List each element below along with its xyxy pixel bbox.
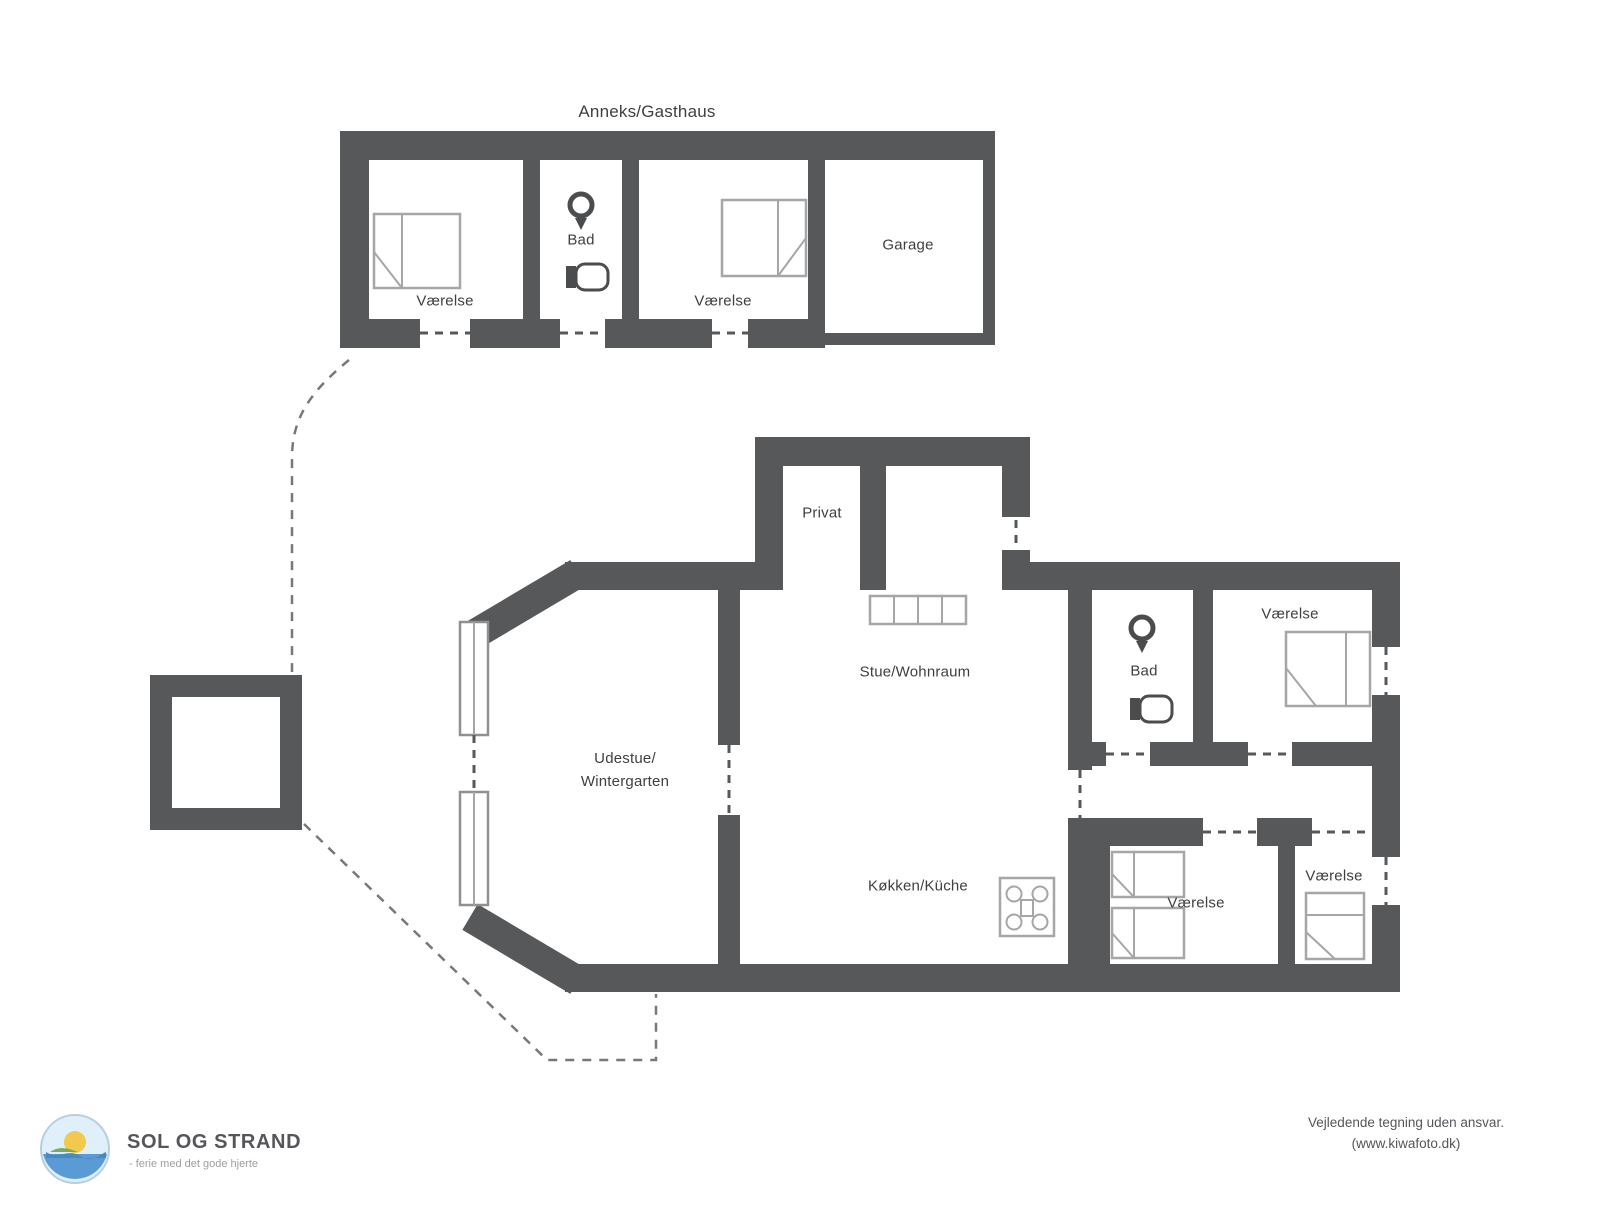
room-label-vaerelse-nord: Værelse	[1261, 606, 1318, 623]
single-bed-icon	[1306, 893, 1364, 959]
room-label-privat: Privat	[802, 505, 842, 522]
sink-icon	[1130, 696, 1172, 722]
room-label-udestue-line2: Wintergarten	[581, 770, 669, 793]
double-bed-icon	[722, 200, 806, 276]
room-label-udestue-line1: Udestue/	[581, 747, 669, 770]
single-bed-icon	[1112, 908, 1184, 958]
room-label-koekken: Køkken/Küche	[868, 878, 968, 895]
toilet-icon	[570, 194, 592, 230]
double-bed-icon	[1286, 632, 1370, 706]
sink-icon	[566, 264, 608, 290]
privat-block-walls	[755, 437, 1030, 590]
disclaimer-line2: (www.kiwafoto.dk)	[1272, 1133, 1540, 1154]
room-label-annex-vaerelse-1: Værelse	[416, 293, 473, 310]
disclaimer-line1: Vejledende tegning uden ansvar.	[1272, 1112, 1540, 1133]
floor-plan: Anneks/Gasthaus Værelse Bad Værelse Gara…	[0, 0, 1606, 1205]
stove-icon	[1000, 878, 1054, 936]
toilet-icon	[1131, 617, 1153, 653]
brand-tagline: - ferie med det gode hjerte	[129, 1158, 258, 1170]
room-label-annex-bad: Bad	[567, 232, 594, 249]
window	[460, 622, 488, 905]
sideboard-icon	[870, 596, 966, 624]
room-label-udestue: Udestue/ Wintergarten	[581, 747, 669, 793]
brand-wordmark: SOL OG STRAND	[127, 1131, 301, 1154]
annex-title: Anneks/Gasthaus	[578, 102, 715, 122]
room-label-annex-vaerelse-2: Værelse	[694, 293, 751, 310]
room-label-vaerelse-syd-vest: Værelse	[1167, 895, 1224, 912]
room-label-bad: Bad	[1130, 663, 1157, 680]
sun-and-beach-logo-icon	[38, 1112, 112, 1186]
double-bed-icon	[374, 214, 460, 288]
room-label-stue: Stue/Wohnraum	[860, 664, 971, 681]
room-label-garage: Garage	[882, 237, 933, 254]
single-bed-icon	[1112, 852, 1184, 897]
outbuilding	[150, 675, 302, 830]
disclaimer: Vejledende tegning uden ansvar. (www.kiw…	[1272, 1112, 1540, 1154]
room-label-vaerelse-syd-oest: Værelse	[1305, 868, 1362, 885]
floor-plan-drawing	[0, 0, 1606, 1205]
